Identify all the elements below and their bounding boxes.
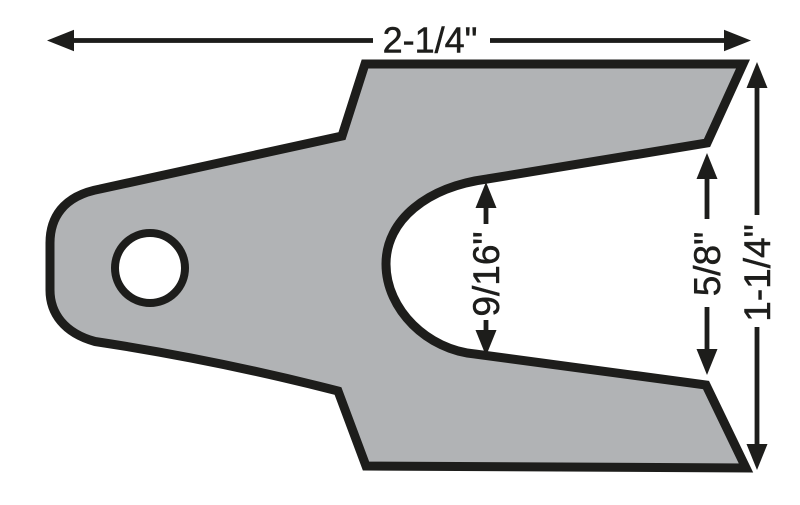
svg-text:9/16": 9/16" — [466, 231, 507, 316]
svg-text:5/8": 5/8" — [687, 232, 728, 297]
svg-text:1-1/4": 1-1/4" — [737, 224, 778, 321]
svg-text:2-1/4": 2-1/4" — [383, 20, 478, 61]
